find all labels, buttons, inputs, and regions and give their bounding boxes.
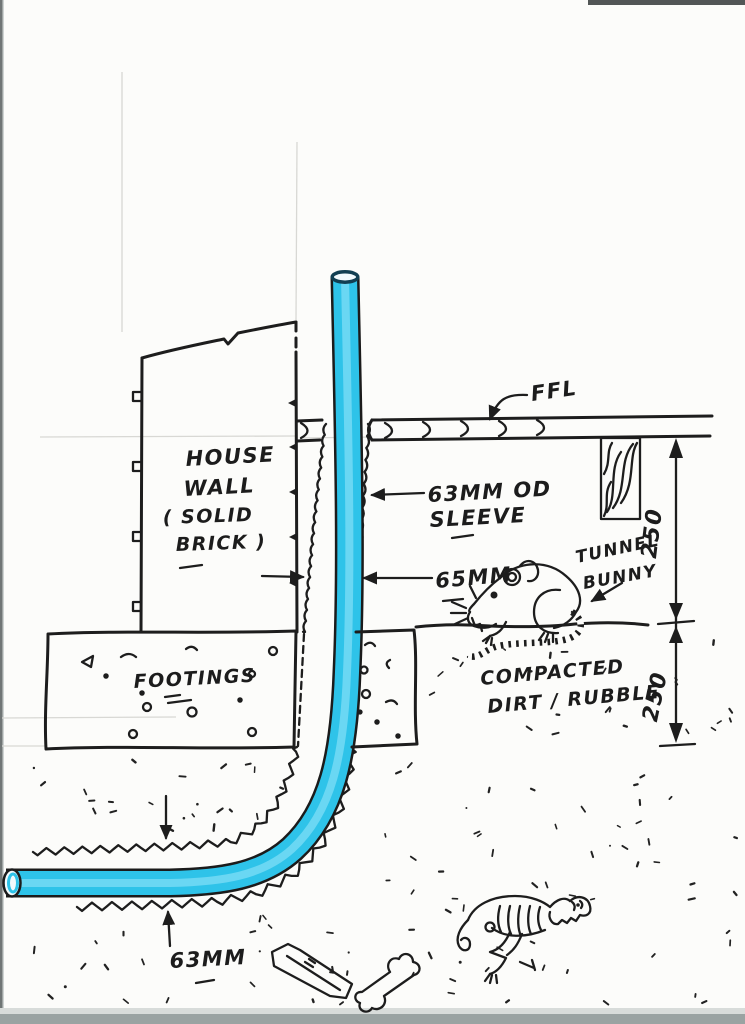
dirt-speckle (478, 834, 482, 837)
dirt-speckle (132, 760, 135, 763)
footings-underline-dash (168, 700, 191, 703)
house-wall: HOUSE WALL ( SOLID BRICK ) (133, 322, 297, 632)
dirt-speckle (95, 941, 97, 943)
dirt-speckle (729, 709, 732, 713)
dirt-speckle (582, 807, 586, 812)
dirt-speckle (251, 982, 255, 986)
dirt-speckle (110, 811, 116, 813)
dirt-speckle (652, 954, 655, 957)
tunnel-bunny-annotation: TUNNEL BUNNY (574, 531, 662, 601)
slab-hatch (385, 420, 544, 438)
dirt-speckle (430, 693, 435, 695)
dirt-speckle (450, 979, 455, 981)
pipe-od-label: 63MM (169, 945, 247, 973)
sleeve-dashed-left (298, 634, 304, 746)
dirt-speckle (543, 965, 545, 970)
dirt-speckle (179, 776, 185, 777)
dim-mid-tick (658, 621, 694, 624)
dirt-speckle (618, 826, 621, 828)
dirt-speckle (168, 828, 173, 831)
dirt-speckle (81, 964, 85, 969)
sleeve-label-line2: SLEEVE (429, 503, 527, 532)
dim-arrow-mid-upper (669, 603, 683, 620)
dirt-speckle (446, 910, 451, 913)
house-wall-label-line4: BRICK ) (175, 531, 266, 556)
dirt-speckle (550, 653, 551, 658)
dirt-speckle (686, 729, 689, 733)
house-wall-label-line1: HOUSE (185, 442, 276, 471)
dirt-speckle (546, 882, 548, 887)
dirt-speckle (348, 951, 350, 953)
dirt-speckle (624, 726, 627, 727)
dirt-speckle (41, 782, 45, 785)
rat-eye (491, 592, 498, 599)
dirt-speckle (269, 925, 272, 928)
dirt-speckle (217, 809, 222, 813)
dirt-speckle (385, 834, 386, 837)
dirt-speckle (610, 708, 611, 711)
dirt-speckle (408, 763, 412, 767)
dirt-speckle (640, 775, 644, 777)
joist-wood-grain (604, 443, 637, 516)
dirt-speckle (648, 839, 649, 845)
scanned-sketch-page: HOUSE WALL ( SOLID BRICK ) (0, 0, 745, 1024)
dirt-speckle (49, 995, 53, 999)
dim-bottom-tick (660, 744, 695, 746)
house-wall-label-line3: ( SOLID (162, 504, 253, 529)
dirt-speckle (448, 993, 454, 994)
dirt-speckle (609, 845, 611, 847)
rat-tail-fill (468, 612, 581, 657)
footings-label: FOOTINGS (133, 665, 256, 693)
dirt-speckle (532, 883, 537, 887)
dirt-speckle (64, 985, 67, 988)
dirt-speckle (734, 837, 737, 838)
dirt-speckle (727, 931, 730, 933)
dirt-speckle (460, 663, 463, 667)
dirt-speckle (637, 862, 638, 866)
slab-stub-hatch (301, 423, 308, 438)
dirt-speckle (654, 862, 659, 863)
buried-plank (272, 944, 352, 998)
dirt-speckle (196, 803, 199, 806)
dirt-speckle (634, 784, 637, 785)
floor-joist (601, 438, 640, 519)
pipe-top-opening (332, 272, 358, 282)
dirt-speckle (34, 947, 35, 953)
wall-left-edge (141, 358, 142, 632)
pipe-od-underline-dash (196, 980, 214, 983)
dirt-speckle (474, 832, 479, 834)
dirt-speckle (527, 727, 532, 730)
sketch-canvas: HOUSE WALL ( SOLID BRICK ) (0, 0, 745, 1024)
sleeve-annotation: 63MM OD SLEEVE (372, 477, 552, 538)
gap-underline-dash (443, 599, 463, 601)
dim-label-lower: 250 (638, 669, 673, 724)
dirt-speckle (246, 764, 251, 765)
dirt-speckle (124, 999, 129, 1003)
dirt-speckle (221, 764, 226, 768)
tunnel-bunny-label-line2: BUNNY (581, 561, 659, 594)
dirt-speckle (463, 905, 464, 911)
label-underline-dash (180, 565, 202, 568)
buried-bone (355, 954, 419, 1012)
house-wall-label: HOUSE WALL ( SOLID BRICK ) (162, 442, 275, 568)
pipe-od-up-arrow (168, 912, 170, 946)
dirt-speckle (591, 852, 593, 857)
dim-arrow-bottom (669, 723, 683, 743)
ffl-label: FFL (529, 376, 578, 406)
dirt-speckle (555, 825, 556, 829)
dirt-speckle (506, 1000, 509, 1002)
dirt-speckle (192, 814, 194, 816)
dirt-speckle (142, 959, 144, 964)
dirt-speckle (340, 1002, 343, 1004)
dirt-speckle (313, 1000, 314, 1003)
dirt-speckle (167, 998, 169, 1003)
dirt-speckle (734, 892, 737, 895)
dirt-speckle (636, 821, 641, 823)
dirt-speckle (257, 814, 258, 820)
dirt-speckle (230, 810, 232, 812)
dirt-speckle (84, 790, 86, 795)
dirt-speckle (489, 788, 490, 792)
dirt-speckle (570, 895, 576, 896)
sleeve-scallop-left (303, 424, 326, 632)
dirt-speckle (250, 931, 255, 932)
dirt-speckle (453, 658, 458, 660)
dim-arrow-top (669, 438, 683, 458)
dimension-line: 250 250 (637, 438, 695, 746)
slab-top-line (372, 416, 712, 420)
wall-top-break-line (142, 322, 296, 358)
compacted-dirt-label: COMPACTED DIRT / RUBBLE (480, 655, 662, 718)
dirt-speckle (260, 916, 261, 922)
dirt-speckle (411, 857, 416, 860)
sleeve-leader-arrow (372, 493, 424, 495)
ffl-leader-arrow (490, 395, 527, 419)
dirt-speckle (712, 728, 716, 731)
water-pipe (4, 272, 358, 897)
dirt-speckle (713, 640, 714, 645)
dirt-speckle (531, 942, 535, 944)
dirt-speckle (183, 817, 186, 820)
sleeve-label-line1: 63MM OD (427, 477, 552, 507)
dirt-speckle (411, 890, 413, 894)
dirt-speckle (327, 932, 333, 933)
strip-aggregate (359, 643, 400, 738)
dinosaur-skeleton (458, 896, 591, 983)
footings-block: FOOTINGS (45, 631, 296, 749)
dirt-speckle (280, 788, 283, 789)
dirt-speckle (492, 850, 493, 856)
dirt-speckle (33, 767, 35, 769)
dirt-speckle (214, 824, 215, 830)
dirt-speckle (93, 809, 95, 814)
dirt-speckle (591, 899, 595, 900)
dirt-speckle (689, 898, 695, 899)
dirt-speckle (702, 1001, 706, 1003)
compacted-label-line1: COMPACTED (480, 655, 626, 690)
dirt-speckle (622, 846, 627, 849)
dirt-speckle (396, 771, 401, 773)
dirt-speckle (567, 970, 568, 973)
dirt-speckle (553, 733, 559, 735)
dirt-speckle (486, 968, 489, 971)
dirt-speckle (105, 965, 108, 970)
dirt-speckle (149, 803, 153, 805)
dirt-speckle (429, 953, 432, 959)
dirt-speckle (717, 721, 721, 723)
ffl-annotation: FFL (490, 376, 579, 419)
dirt-speckle (730, 718, 731, 721)
dirt-speckle (438, 672, 443, 676)
dirt-speckle (531, 789, 535, 791)
construction-lines (2, 72, 372, 746)
footings-aggregate (82, 647, 277, 738)
house-wall-label-line2: WALL (183, 473, 256, 501)
gap-arrow-left (262, 576, 303, 577)
sleeve-underline-dash (452, 535, 473, 538)
dirt-speckle (459, 961, 462, 964)
dirt-speckle (691, 883, 695, 884)
dirt-speckle (465, 807, 467, 809)
ground-line (416, 623, 648, 627)
dirt-speckle (604, 1001, 609, 1004)
dirt-speckle (263, 915, 266, 919)
dirt-speckle (259, 950, 261, 952)
dirt-speckle (347, 971, 348, 975)
dim-arrow-mid-lower (669, 626, 683, 643)
dirt-speckle (669, 797, 671, 799)
